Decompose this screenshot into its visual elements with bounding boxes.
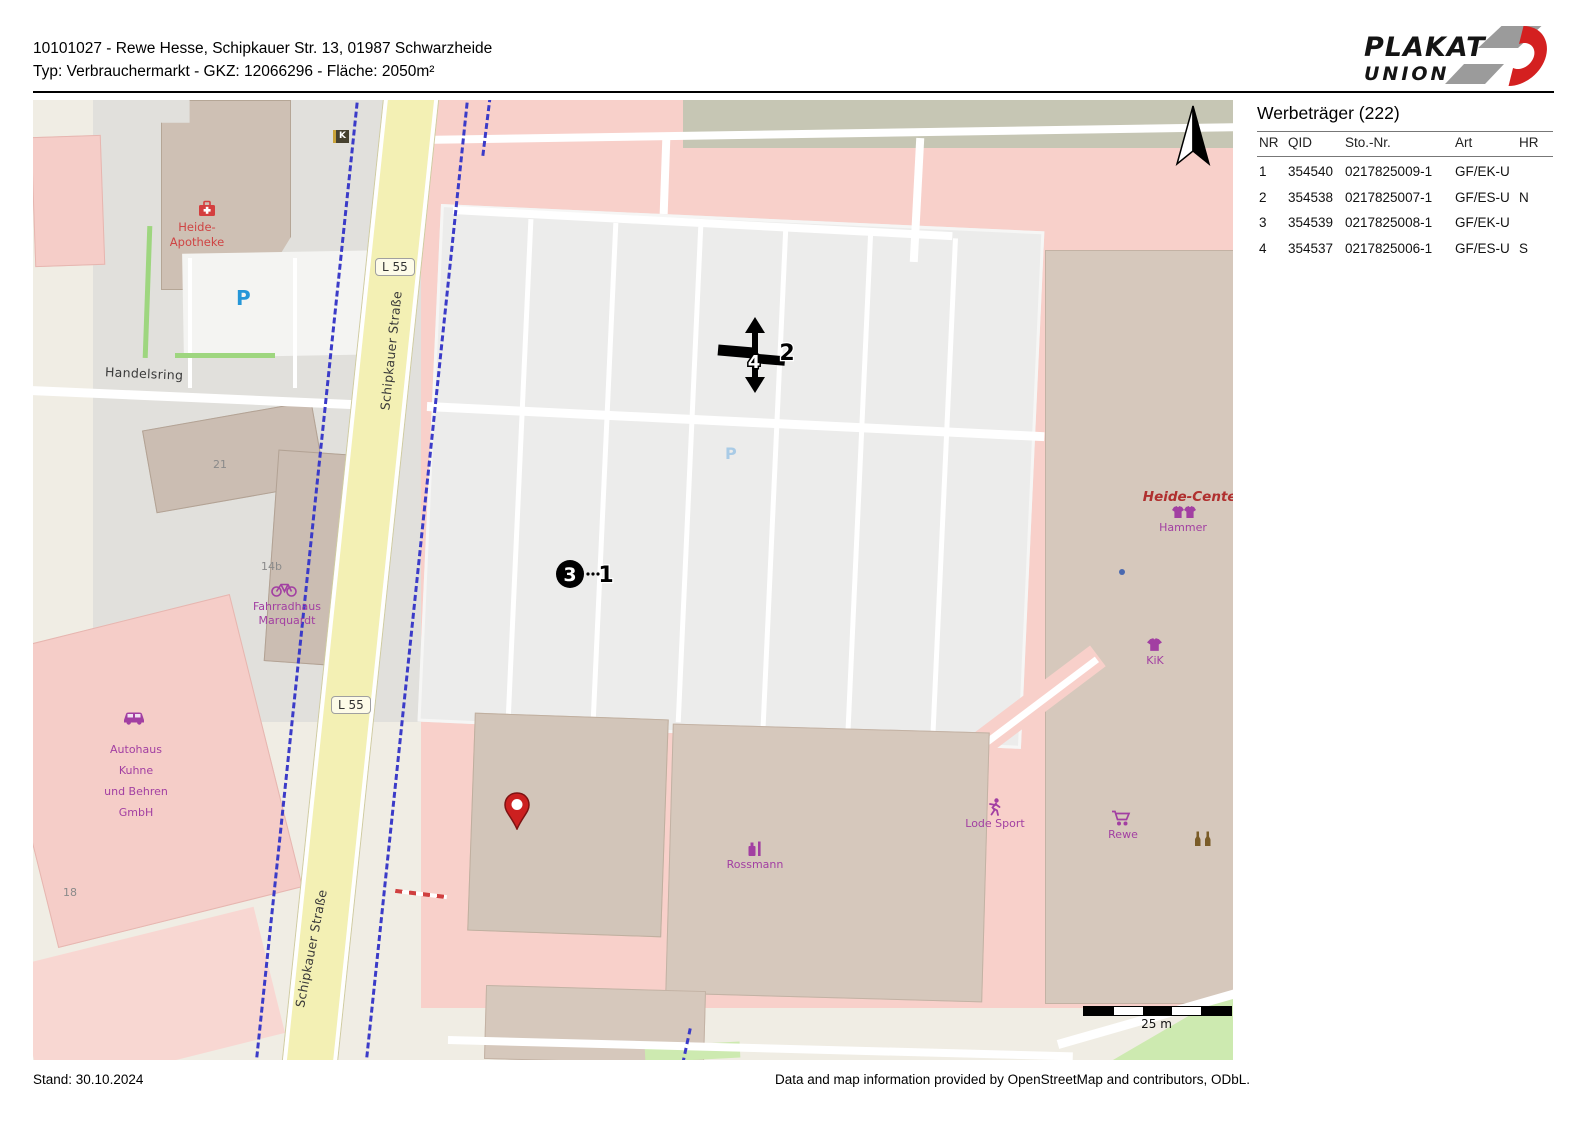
poi-label-apotheke-line2: Apotheke bbox=[151, 235, 243, 250]
parking-aisle-line bbox=[930, 238, 957, 734]
kiosk-icon: K bbox=[333, 130, 349, 143]
house-number-21: 21 bbox=[213, 458, 227, 471]
scale-segment bbox=[1201, 1007, 1231, 1015]
scale-segment bbox=[1114, 1007, 1143, 1015]
poi-label-autohaus-line1: Autohaus bbox=[86, 740, 186, 761]
page-subtitle: Typ: Verbrauchermarkt - GKZ: 12066296 - … bbox=[33, 63, 434, 81]
road-minor-1 bbox=[188, 258, 192, 388]
col-header-art: Art bbox=[1455, 135, 1472, 150]
poi-label-rewe: Rewe bbox=[1095, 828, 1151, 842]
poi-label-heide-center: Heide-Center bbox=[1128, 489, 1233, 505]
runner-icon bbox=[985, 798, 1002, 816]
clothes-icon-hammer bbox=[1171, 506, 1197, 519]
marker-label-4: 4 bbox=[748, 352, 761, 373]
cell-qid: 354537 bbox=[1288, 241, 1333, 256]
cell-sto: 0217825007-1 bbox=[1345, 190, 1432, 205]
parking-aisle-line bbox=[591, 223, 618, 719]
clothes-icon-kik bbox=[1147, 638, 1162, 651]
logo-graphic: PLAKAT UNION bbox=[1362, 24, 1562, 86]
panel-title: Werbeträger (222) bbox=[1257, 103, 1400, 124]
cell-art: GF/EK-U bbox=[1455, 164, 1510, 179]
cell-qid: 354538 bbox=[1288, 190, 1333, 205]
marker-group-3-1: 3 1 bbox=[554, 553, 644, 595]
poi-label-rossmann: Rossmann bbox=[705, 858, 805, 872]
beverages-icon bbox=[1193, 830, 1213, 847]
logo-text-2: UNION bbox=[1364, 63, 1449, 85]
house-number-14b: 14b bbox=[261, 560, 282, 573]
poi-label-fahrradhaus-line2: Marquardt bbox=[237, 614, 337, 628]
col-header-nr: NR bbox=[1259, 135, 1279, 150]
poi-label-fahrradhaus-line1: Fahrradhaus bbox=[237, 600, 337, 614]
poi-label-fahrradhaus: Fahrradhaus Marquardt bbox=[237, 600, 337, 629]
cell-sto: 0217825008-1 bbox=[1345, 215, 1432, 230]
parking-aisle-line bbox=[846, 234, 873, 730]
col-header-qid: QID bbox=[1288, 135, 1312, 150]
house-number-18: 18 bbox=[63, 886, 77, 899]
road-minor-2 bbox=[293, 258, 297, 388]
north-arrow-icon bbox=[1171, 104, 1215, 168]
panel-rule-top bbox=[1257, 131, 1553, 132]
parking-aisle-line bbox=[761, 231, 788, 727]
poi-label-autohaus-line4: GmbH bbox=[86, 803, 186, 824]
cell-art: GF/EK-U bbox=[1455, 215, 1510, 230]
cell-nr: 4 bbox=[1259, 241, 1267, 256]
cell-hr: S bbox=[1519, 241, 1528, 256]
poi-label-kik: KiK bbox=[1131, 654, 1179, 668]
parking-symbol-left: P bbox=[236, 286, 251, 310]
cell-qid: 354539 bbox=[1288, 215, 1333, 230]
scale-segment bbox=[1172, 1007, 1201, 1015]
location-pin-icon bbox=[504, 792, 530, 830]
scale-segment bbox=[1143, 1007, 1172, 1015]
chemist-icon bbox=[745, 840, 763, 857]
scale-label: 25 m bbox=[1083, 1017, 1230, 1031]
col-header-hr: HR bbox=[1519, 135, 1539, 150]
map-canvas: K Heide- Apotheke P P L 55 L 55 Handelsr… bbox=[33, 100, 1233, 1060]
poi-label-lode-sport: Lode Sport bbox=[945, 817, 1045, 831]
cell-nr: 2 bbox=[1259, 190, 1267, 205]
poi-label-apotheke: Heide- Apotheke bbox=[151, 220, 243, 250]
scale-segment bbox=[1084, 1007, 1114, 1015]
logo-text-1: PLAKAT bbox=[1364, 32, 1487, 63]
marker-group-2-4: 4 2 bbox=[710, 313, 800, 397]
cell-sto: 0217825006-1 bbox=[1345, 241, 1432, 256]
poi-label-hammer: Hammer bbox=[1143, 521, 1223, 535]
panel-rule-header bbox=[1257, 156, 1553, 157]
cart-icon bbox=[1111, 810, 1132, 827]
building-rewe bbox=[467, 713, 668, 938]
cell-art: GF/ES-U bbox=[1455, 190, 1510, 205]
header-rule bbox=[33, 91, 1554, 93]
col-header-sto: Sto.-Nr. bbox=[1345, 135, 1391, 150]
attribution: Data and map information provided by Ope… bbox=[600, 1072, 1250, 1087]
marker-label-2: 2 bbox=[779, 341, 794, 366]
parking-symbol-right: P bbox=[725, 444, 737, 463]
building-heide-center bbox=[1045, 250, 1233, 1004]
building-pink-topleft bbox=[33, 135, 105, 267]
bicycle-icon bbox=[271, 580, 297, 597]
report-page: 10101027 - Rewe Hesse, Schipkauer Str. 1… bbox=[0, 0, 1587, 1123]
marker-label-1: 1 bbox=[598, 563, 613, 588]
pharmacy-icon bbox=[198, 200, 216, 217]
parking-lot bbox=[418, 204, 1045, 749]
parking-aisle-line bbox=[676, 227, 703, 723]
tree-dot bbox=[1119, 569, 1125, 575]
poi-label-autohaus: Autohaus Kuhne und Behren GmbH bbox=[86, 740, 186, 824]
road-ref-l55-north: L 55 bbox=[375, 258, 415, 276]
marker-label-3: 3 bbox=[563, 564, 576, 586]
poi-label-autohaus-line3: und Behren bbox=[86, 782, 186, 803]
car-icon bbox=[123, 710, 145, 725]
parking-aisle-line bbox=[506, 219, 533, 715]
cell-art: GF/ES-U bbox=[1455, 241, 1510, 256]
plakat-union-logo: PLAKAT UNION bbox=[1362, 24, 1562, 86]
poi-label-autohaus-line2: Kuhne bbox=[86, 761, 186, 782]
poi-label-apotheke-line1: Heide- bbox=[151, 220, 243, 235]
cell-qid: 354540 bbox=[1288, 164, 1333, 179]
cell-sto: 0217825009-1 bbox=[1345, 164, 1432, 179]
page-title: 10101027 - Rewe Hesse, Schipkauer Str. 1… bbox=[33, 40, 492, 58]
parking-area-apotheke bbox=[182, 250, 382, 357]
cell-hr: N bbox=[1519, 190, 1529, 205]
road-ref-l55-south: L 55 bbox=[331, 696, 371, 714]
status-date: Stand: 30.10.2024 bbox=[33, 1072, 143, 1087]
scale-bar bbox=[1083, 1006, 1232, 1016]
cell-nr: 3 bbox=[1259, 215, 1267, 230]
hedge-horizontal bbox=[175, 353, 275, 358]
cell-nr: 1 bbox=[1259, 164, 1267, 179]
